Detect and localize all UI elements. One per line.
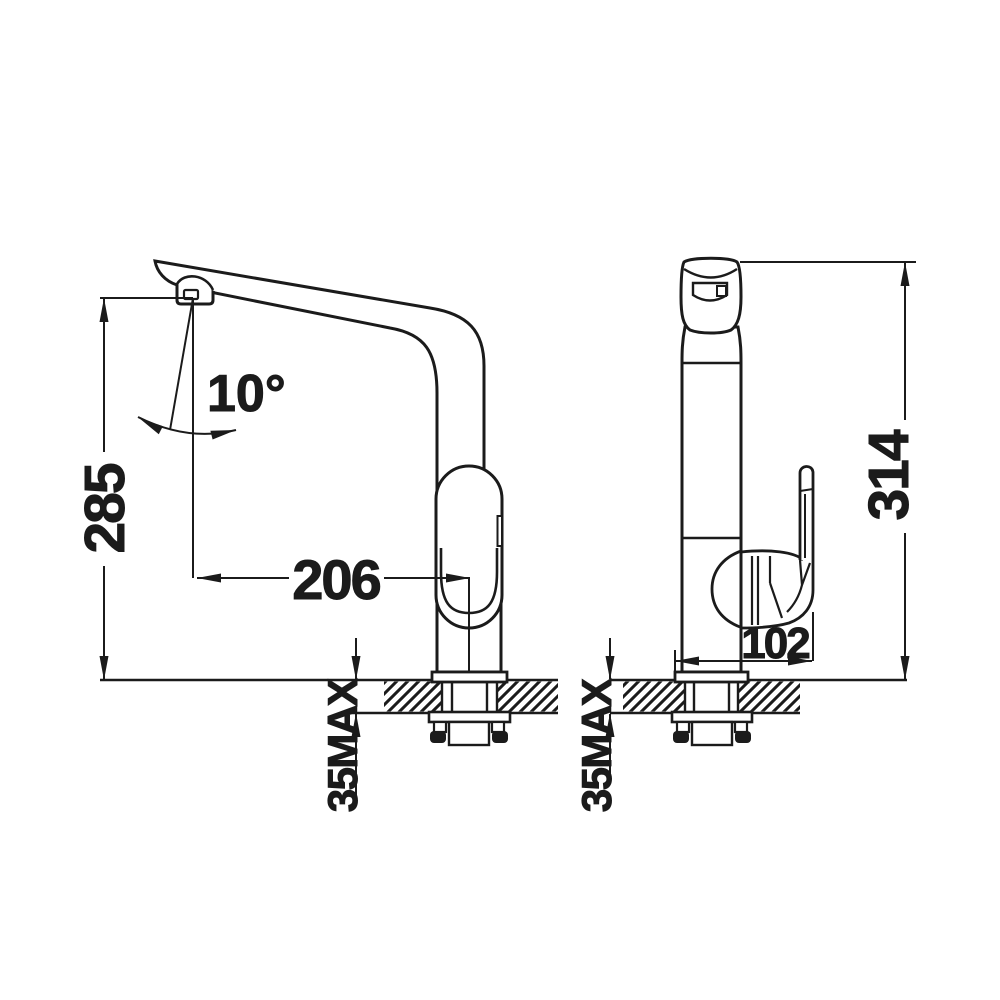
mounting-plate-left — [429, 712, 510, 722]
dim-height-side: 285 — [73, 298, 193, 680]
dim-deck-right-label: 35MAX — [573, 678, 620, 812]
arrow-up-icon — [901, 262, 910, 286]
faucet-dimension-drawing: 285 10° 206 35MAX — [0, 0, 1000, 1000]
side-view: 285 10° 206 35MAX — [73, 261, 558, 812]
countertop-hatch-left-a — [384, 682, 442, 712]
dim-spout-angle: 10° — [137, 298, 286, 578]
dim-spout-reach: 206 — [197, 548, 470, 672]
handle-lever-tip — [787, 560, 810, 612]
countertop-hatch-right-a — [623, 682, 685, 712]
rubber-foot — [430, 731, 446, 743]
rubber-foot — [492, 731, 508, 743]
mounting-shank-right — [685, 682, 738, 712]
body-front — [682, 327, 741, 672]
undermount-hardware-right — [672, 712, 752, 745]
technical-drawing-canvas: 285 10° 206 35MAX — [0, 0, 1000, 1000]
arrow-up-icon — [100, 298, 109, 322]
dim-deck-thickness-right: 35MAX — [573, 638, 620, 812]
arrow-down-icon — [901, 656, 910, 680]
handle-housing-detail-lines — [752, 556, 782, 625]
countertop-hatch-right-b — [738, 682, 800, 712]
handle-lever-blade — [800, 466, 813, 560]
mounting-tab — [492, 722, 504, 732]
dim-deck-thickness-left: 35MAX — [319, 638, 366, 812]
arrow-left-icon — [197, 574, 221, 583]
handle-housing-top — [741, 551, 803, 560]
front-view: 314 102 35MAX — [573, 258, 921, 812]
arrow-down-icon — [100, 656, 109, 680]
countertop-hatch-left-b — [498, 682, 558, 712]
base-flange-left — [432, 672, 507, 682]
mounting-tab — [735, 722, 747, 732]
rubber-foot — [673, 731, 689, 743]
mounting-shank-left — [442, 682, 497, 712]
base-flange-right — [675, 672, 748, 682]
dim-depth-label: 102 — [741, 619, 809, 668]
mounting-nut-left — [449, 722, 489, 745]
arrow-down-icon — [352, 656, 361, 680]
mounting-nut-right — [692, 722, 732, 745]
rubber-foot — [735, 731, 751, 743]
dim-angle-label: 10° — [207, 365, 286, 423]
dim-height-side-label: 285 — [73, 463, 137, 553]
mounting-tab — [434, 722, 446, 732]
handle-notch — [498, 516, 503, 546]
dim-height-front-label: 314 — [857, 429, 921, 520]
undermount-hardware-left — [429, 712, 510, 745]
mounting-plate-right — [672, 712, 752, 722]
countertop-right — [610, 680, 907, 713]
dim-deck-left-label: 35MAX — [319, 678, 366, 812]
dim-reach-label: 206 — [292, 548, 380, 611]
arrow-down-icon — [606, 656, 615, 680]
angle-ref-tilted — [170, 298, 193, 430]
mounting-tab — [677, 722, 689, 732]
dim-height-front: 314 — [740, 262, 921, 680]
arrow-right-icon — [210, 425, 236, 440]
